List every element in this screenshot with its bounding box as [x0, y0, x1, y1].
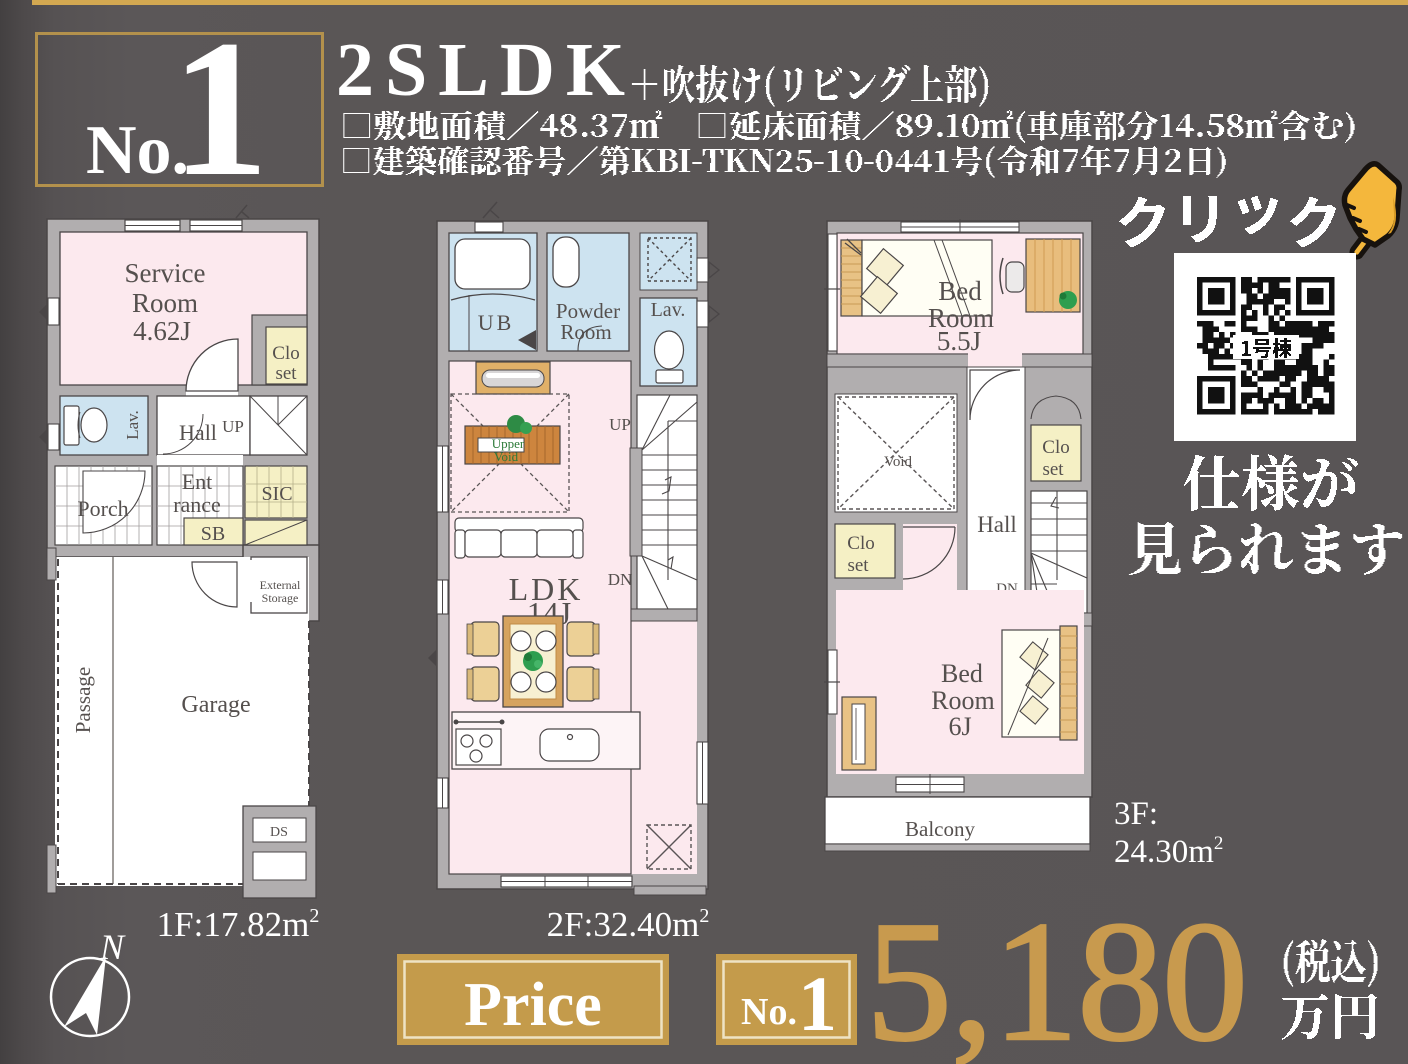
svg-text:Lav.: Lav.: [651, 299, 686, 321]
svg-text:Garage: Garage: [181, 692, 250, 718]
svg-text:set: set: [1042, 459, 1064, 480]
svg-text:6J: 6J: [948, 712, 971, 741]
svg-text:Bed: Bed: [938, 276, 982, 306]
svg-text:rance: rance: [173, 492, 221, 517]
svg-text:Price: Price: [464, 971, 602, 1039]
svg-text:Clo: Clo: [1042, 437, 1069, 458]
svg-text:1: 1: [798, 960, 837, 1047]
svg-text:Bed: Bed: [941, 659, 983, 688]
svg-text:Clo: Clo: [272, 343, 299, 364]
svg-text:Passage: Passage: [71, 667, 95, 734]
svg-text:24.30m2: 24.30m2: [1114, 833, 1223, 870]
svg-text:Hall: Hall: [977, 512, 1017, 537]
svg-text:Service: Service: [125, 258, 206, 288]
svg-text:4.62J: 4.62J: [133, 316, 191, 346]
svg-text:Void: Void: [884, 454, 913, 470]
svg-text:Room: Room: [560, 320, 611, 344]
svg-text:1: 1: [171, 0, 269, 217]
svg-text:Porch: Porch: [77, 496, 128, 521]
svg-text:Ent: Ent: [182, 469, 213, 494]
svg-text:Hall: Hall: [179, 420, 217, 445]
svg-text:No.: No.: [741, 991, 797, 1033]
svg-text:SIC: SIC: [261, 483, 292, 505]
svg-text:5.5J: 5.5J: [937, 326, 981, 356]
svg-text:Room: Room: [132, 288, 198, 318]
svg-text:set: set: [847, 555, 869, 576]
svg-text:Lav.: Lav.: [123, 410, 142, 440]
svg-text:UB: UB: [478, 310, 515, 335]
svg-text:Balcony: Balcony: [905, 817, 975, 841]
svg-text:1F:17.82m2: 1F:17.82m2: [157, 905, 320, 944]
svg-text:Void: Void: [494, 449, 519, 464]
svg-text:Room: Room: [931, 686, 995, 715]
svg-text:Clo: Clo: [847, 533, 874, 554]
svg-text:DS: DS: [270, 825, 288, 840]
svg-text:DN: DN: [608, 570, 633, 589]
svg-text:5,180: 5,180: [866, 887, 1248, 1064]
svg-text:SB: SB: [201, 523, 225, 545]
svg-text:3F:: 3F:: [1114, 796, 1158, 832]
svg-text:N: N: [99, 927, 126, 967]
svg-text:UP: UP: [609, 415, 631, 434]
svg-text:2SLDK: 2SLDK: [336, 28, 636, 112]
svg-text:Storage: Storage: [262, 591, 299, 605]
svg-text:set: set: [275, 363, 297, 384]
svg-text:External: External: [260, 578, 301, 592]
svg-text:2F:32.40m2: 2F:32.40m2: [547, 905, 710, 944]
svg-text:UP: UP: [222, 417, 244, 436]
